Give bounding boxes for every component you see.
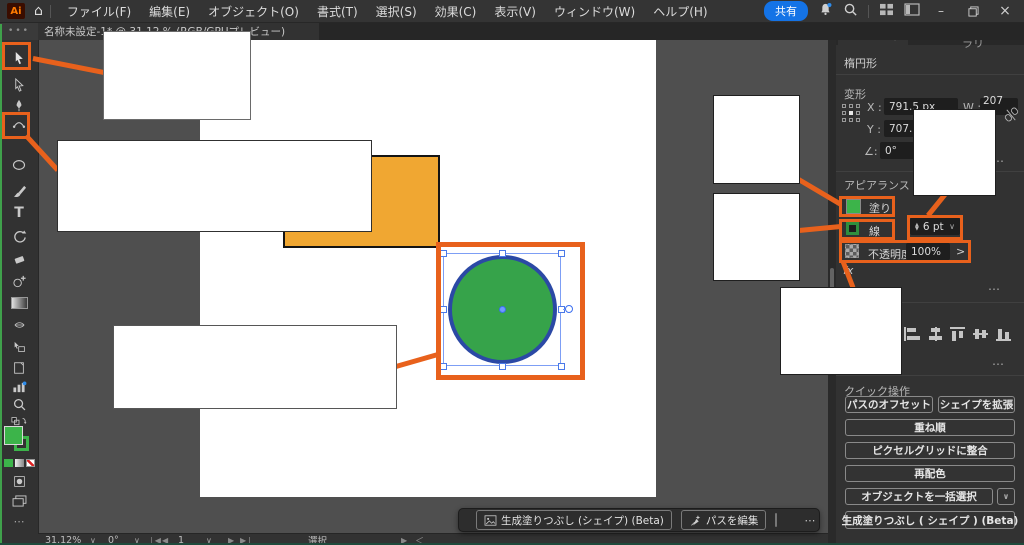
note-box-opacity	[780, 287, 902, 375]
color-button[interactable]	[4, 459, 13, 467]
object-type-label: 楕円形	[844, 55, 877, 71]
align-bottom-icon[interactable]	[996, 327, 1013, 342]
cursor-square-icon	[12, 341, 27, 354]
eraser-icon	[12, 252, 27, 266]
edit-path-icon	[689, 514, 702, 527]
expand-shape-button[interactable]: シェイプを拡張	[938, 396, 1015, 413]
direct-selection-arrow-icon	[12, 78, 27, 93]
divider	[836, 375, 1024, 376]
more-options-icon[interactable]: ⋯	[804, 514, 815, 527]
recolor-button[interactable]: 再配色	[845, 465, 1015, 482]
screen-mode-icon	[12, 495, 27, 507]
arrange-button[interactable]: 重ね順	[845, 419, 1015, 436]
pixel-grid-button[interactable]: ピクセルグリッドに整合	[845, 442, 1015, 459]
y-label: Y :	[867, 123, 881, 136]
screen-edge-strip	[0, 24, 2, 543]
generative-fill-panel-button[interactable]: 生成塗りつぶし ( シェイプ ) (Beta)	[845, 511, 1015, 529]
panel-layout-icon[interactable]	[904, 3, 920, 19]
properties-panel: プロパティ レイヤー CC ライブラリ 楕円形 変形 X : 791.5 px …	[836, 24, 1024, 545]
close-button[interactable]: ×	[994, 1, 1016, 21]
artboard[interactable]	[200, 40, 656, 497]
unlink-proportions-icon[interactable]	[1004, 106, 1019, 126]
menu-object[interactable]: オブジェクト(O)	[199, 3, 308, 20]
gradient-icon	[11, 297, 28, 309]
divider	[836, 74, 1024, 75]
note-box-fill	[713, 95, 800, 184]
illustrator-window: Ai ⌂ ファイル(F) 編集(E) オブジェクト(O) 書式(T) 選択(S)…	[0, 0, 1024, 545]
select-objects-button[interactable]: オブジェクトを一括選択	[845, 488, 993, 505]
highlight-selected-shape	[436, 242, 585, 380]
x-label: X :	[867, 101, 882, 114]
more-tools-button[interactable]: ⋯	[0, 510, 38, 532]
reference-point-grid[interactable]	[842, 104, 860, 122]
selection-behind-tool[interactable]	[0, 336, 38, 358]
width-icon	[12, 319, 27, 331]
rotate-tool[interactable]	[0, 225, 38, 247]
share-button[interactable]: 共有	[764, 1, 808, 21]
fill-stroke-indicator[interactable]	[4, 426, 34, 456]
search-icon[interactable]	[843, 2, 858, 20]
screen-mode-button[interactable]	[0, 490, 38, 512]
fill-color-swatch[interactable]	[775, 513, 777, 527]
divider	[868, 5, 869, 18]
panel-scrollbar[interactable]	[828, 24, 836, 545]
paintbrush-icon	[12, 184, 27, 199]
note-box-stroke	[713, 193, 800, 281]
menu-file[interactable]: ファイル(F)	[58, 3, 140, 20]
appearance-section-label: アピアランス	[844, 177, 910, 193]
restore-button[interactable]	[962, 1, 984, 21]
notifications-bell-icon[interactable]	[818, 2, 833, 20]
ellipse-icon	[11, 158, 27, 172]
width-tool[interactable]	[0, 314, 38, 336]
direct-selection-tool[interactable]	[0, 74, 38, 96]
align-more-icon[interactable]: ⋯	[992, 357, 1005, 371]
workspace-switcher-icon[interactable]	[879, 3, 894, 19]
ellipse-tool[interactable]	[0, 154, 38, 176]
appearance-more-icon[interactable]: ⋯	[988, 282, 1001, 296]
draw-mode-button[interactable]	[0, 470, 38, 492]
toolbar-grip[interactable]: •••	[0, 22, 38, 40]
picture-icon	[484, 515, 497, 526]
note-box-ellipse-tool	[57, 140, 372, 232]
menu-type[interactable]: 書式(T)	[308, 3, 367, 20]
align-top-icon[interactable]	[950, 327, 967, 342]
note-box-shape	[113, 325, 397, 409]
gradient-tool[interactable]	[0, 292, 38, 314]
menu-window[interactable]: ウィンドウ(W)	[545, 3, 644, 20]
menu-edit[interactable]: 編集(E)	[140, 3, 199, 20]
highlight-stroke-row	[839, 219, 895, 240]
home-icon[interactable]: ⌂	[34, 3, 43, 19]
draw-mode-icon	[13, 475, 26, 488]
note-box-stroke-width	[913, 109, 996, 196]
artboard-icon	[12, 361, 26, 375]
divider	[50, 5, 51, 18]
highlight-fill-row	[839, 196, 895, 217]
pen-nib-icon	[12, 98, 26, 113]
highlight-stroke-width	[907, 215, 963, 240]
align-left-icon[interactable]	[904, 327, 921, 342]
generative-fill-button[interactable]: 生成塗りつぶし (シェイプ) (Beta)	[476, 510, 672, 530]
offset-path-button[interactable]: パスのオフセット	[845, 396, 933, 413]
highlight-selection-tool	[2, 42, 31, 70]
menu-view[interactable]: 表示(V)	[485, 3, 545, 20]
connector-line	[33, 56, 105, 75]
magnifier-icon	[12, 397, 27, 412]
graph-icon	[11, 381, 27, 394]
edit-path-button[interactable]: パスを編集	[681, 510, 767, 530]
title-bar: Ai ⌂ ファイル(F) 編集(E) オブジェクト(O) 書式(T) 選択(S)…	[0, 0, 1024, 23]
app-logo-icon[interactable]: Ai	[7, 3, 25, 19]
transform-section-label: 変形	[844, 86, 866, 102]
eraser-tool[interactable]	[0, 248, 38, 270]
note-box-selection-tool	[103, 31, 251, 120]
rotate-icon	[12, 229, 27, 244]
menu-effect[interactable]: 効果(C)	[426, 3, 486, 20]
align-center-v-icon[interactable]	[973, 327, 990, 342]
shape-builder-icon	[12, 274, 27, 289]
gradient-button[interactable]	[15, 459, 24, 467]
type-tool[interactable]: T	[0, 202, 38, 224]
shape-builder-tool[interactable]	[0, 270, 38, 292]
color-mode-row	[4, 459, 35, 467]
context-taskbar: 生成塗りつぶし (シェイプ) (Beta) パスを編集 ⋯	[458, 508, 820, 532]
menu-help[interactable]: ヘルプ(H)	[644, 3, 716, 20]
menu-select[interactable]: 選択(S)	[367, 3, 426, 20]
fill-swatch[interactable]	[4, 426, 23, 445]
align-center-h-icon[interactable]	[927, 327, 944, 342]
highlight-opacity-row	[839, 240, 971, 263]
paintbrush-tool[interactable]	[0, 180, 38, 202]
minimize-button[interactable]: –	[930, 1, 952, 21]
none-button[interactable]	[26, 459, 35, 467]
angle-label: ∠:	[864, 145, 878, 158]
select-objects-dropdown[interactable]: ∨	[997, 488, 1015, 505]
